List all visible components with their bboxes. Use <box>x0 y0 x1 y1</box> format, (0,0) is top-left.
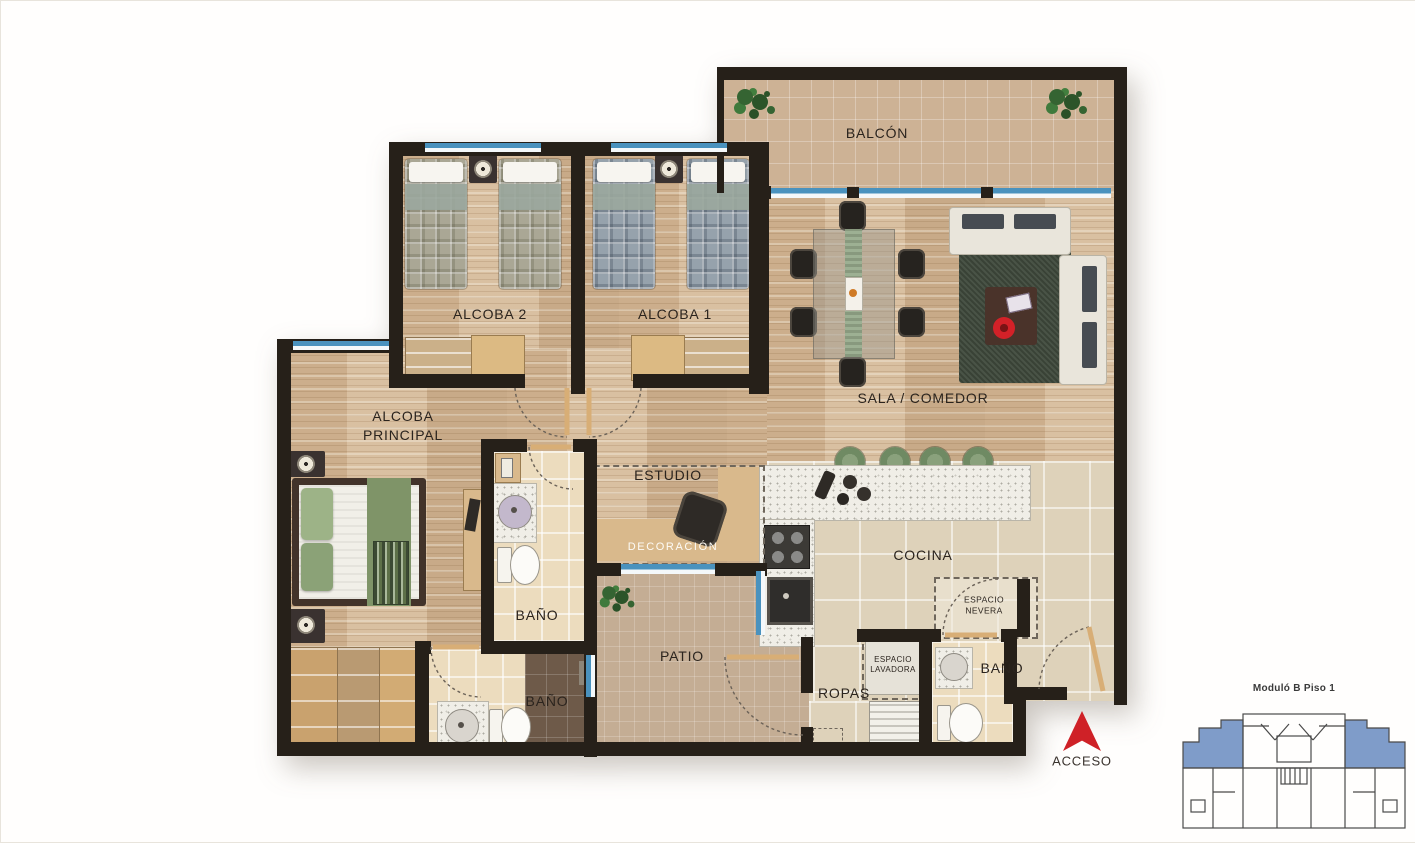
window <box>425 143 541 152</box>
toilet-icon <box>510 545 540 585</box>
room-label-ropas: ROPAS <box>818 685 870 701</box>
bar-plate <box>837 493 849 505</box>
room-label-alcoba1: ALCOBA 1 <box>638 306 712 322</box>
shelf-item <box>501 458 513 478</box>
wall <box>1114 67 1127 705</box>
closet <box>337 647 381 749</box>
wall <box>571 142 585 394</box>
room-label-balcon: BALCÓN <box>846 125 908 141</box>
room-label-estudio: ESTUDIO <box>634 467 702 483</box>
closet <box>287 647 339 749</box>
keyplan-drawing <box>1179 696 1409 832</box>
floorplan-canvas: BALCÓN ALCOBA 2 ALCOBA 1 SALA / COMEDOR … <box>0 0 1415 843</box>
keyplan-title: Moduló B Piso 1 <box>1179 683 1409 694</box>
bed <box>593 159 655 289</box>
keyplan: Moduló B Piso 1 <box>1179 683 1409 835</box>
bed-fold <box>593 184 655 210</box>
toilet-icon <box>501 707 531 747</box>
sofa-cushion <box>1082 266 1097 312</box>
wall <box>1013 695 1026 756</box>
label-line: ESPACIO <box>964 594 1004 604</box>
pillow <box>503 162 557 182</box>
faucet-icon <box>783 593 789 599</box>
sofa-cushion <box>1082 322 1097 368</box>
access-label: ACCESO <box>1052 754 1112 769</box>
faucet-icon <box>511 507 517 513</box>
dining-chair <box>839 357 866 387</box>
dining-chair <box>839 201 866 231</box>
label-espacio-lavadora: ESPACIO LAVADORA <box>870 655 916 675</box>
lamp-icon <box>660 160 678 178</box>
toilet-icon <box>949 703 983 743</box>
room-label-patio: PATIO <box>660 648 704 664</box>
label-line: LAVADORA <box>870 665 916 674</box>
sliding-door-window <box>993 188 1111 198</box>
window <box>621 564 715 574</box>
room-label-decoracion: DECORACIÓN <box>628 541 719 553</box>
bed-fold <box>499 184 561 210</box>
wall <box>801 727 813 755</box>
room-label-sala-comedor: SALA / COMEDOR <box>857 390 988 406</box>
room-label-bano-principal: BAÑO <box>516 607 559 623</box>
wall <box>1001 629 1017 642</box>
keyplan-highlight-unit <box>1183 720 1243 768</box>
pillow <box>301 543 333 591</box>
sofa-cushion <box>962 214 1004 229</box>
bed <box>499 159 561 289</box>
wall <box>717 67 724 193</box>
wall <box>717 67 1127 80</box>
pillow <box>301 488 333 540</box>
lamp-icon <box>474 160 492 178</box>
bed <box>405 159 467 289</box>
palm-plant-icon <box>602 586 616 600</box>
pillow <box>409 162 463 182</box>
window <box>756 571 765 635</box>
wall <box>481 641 597 654</box>
label-line: ESPACIO <box>874 655 912 664</box>
wall <box>277 742 1026 756</box>
wall <box>749 142 769 394</box>
wall <box>1017 579 1030 637</box>
window <box>586 655 595 697</box>
room-label-line: PRINCIPAL <box>363 427 443 443</box>
wall <box>857 629 941 642</box>
room-label-line: ALCOBA <box>372 408 434 424</box>
wall <box>919 642 932 756</box>
dining-chair <box>898 249 925 279</box>
decor-plate <box>993 317 1015 339</box>
room-label-cocina: COCINA <box>893 547 952 563</box>
bar-plate <box>857 487 871 501</box>
wall <box>277 339 291 756</box>
striped-blanket <box>373 541 409 605</box>
wall <box>1013 687 1067 700</box>
bar-plate <box>843 475 857 489</box>
lamp-icon <box>297 455 315 473</box>
wall <box>389 374 525 388</box>
wall <box>633 374 769 388</box>
sofa <box>949 207 1071 255</box>
label-line: NEVERA <box>965 605 1002 615</box>
plant-icon <box>737 89 753 105</box>
sliding-door-window <box>771 188 847 198</box>
sliding-door-window <box>859 188 981 198</box>
wall <box>801 637 813 693</box>
window <box>611 143 727 152</box>
faucet-icon <box>458 722 464 728</box>
sink-icon <box>940 653 968 681</box>
wall <box>415 641 429 756</box>
breakfast-bar-counter <box>759 465 1031 521</box>
plant-icon <box>1049 89 1065 105</box>
wall <box>481 445 494 653</box>
sofa-cushion <box>1014 214 1056 229</box>
dining-chair <box>898 307 925 337</box>
wall <box>757 186 771 199</box>
room-label-bano-auxiliar: BAÑO <box>526 693 569 709</box>
wall <box>597 563 621 576</box>
wall <box>584 445 597 757</box>
keyplan-highlight-unit <box>1345 720 1405 768</box>
kitchen-sink-icon <box>767 577 813 625</box>
window <box>293 341 389 350</box>
bed-fold <box>405 184 467 210</box>
wall <box>847 187 859 198</box>
stove-icon <box>764 525 810 569</box>
room-label-alcoba-principal: ALCOBA PRINCIPAL <box>363 407 443 445</box>
room-label-bano-social: BAÑO <box>981 660 1024 676</box>
sofa <box>1059 255 1107 385</box>
lamp-icon <box>297 616 315 634</box>
label-espacio-nevera: ESPACIO NEVERA <box>964 594 1004 615</box>
pillow <box>597 162 651 182</box>
wall <box>981 187 993 198</box>
room-label-alcoba2: ALCOBA 2 <box>453 306 527 322</box>
fruit-decor <box>849 289 857 297</box>
